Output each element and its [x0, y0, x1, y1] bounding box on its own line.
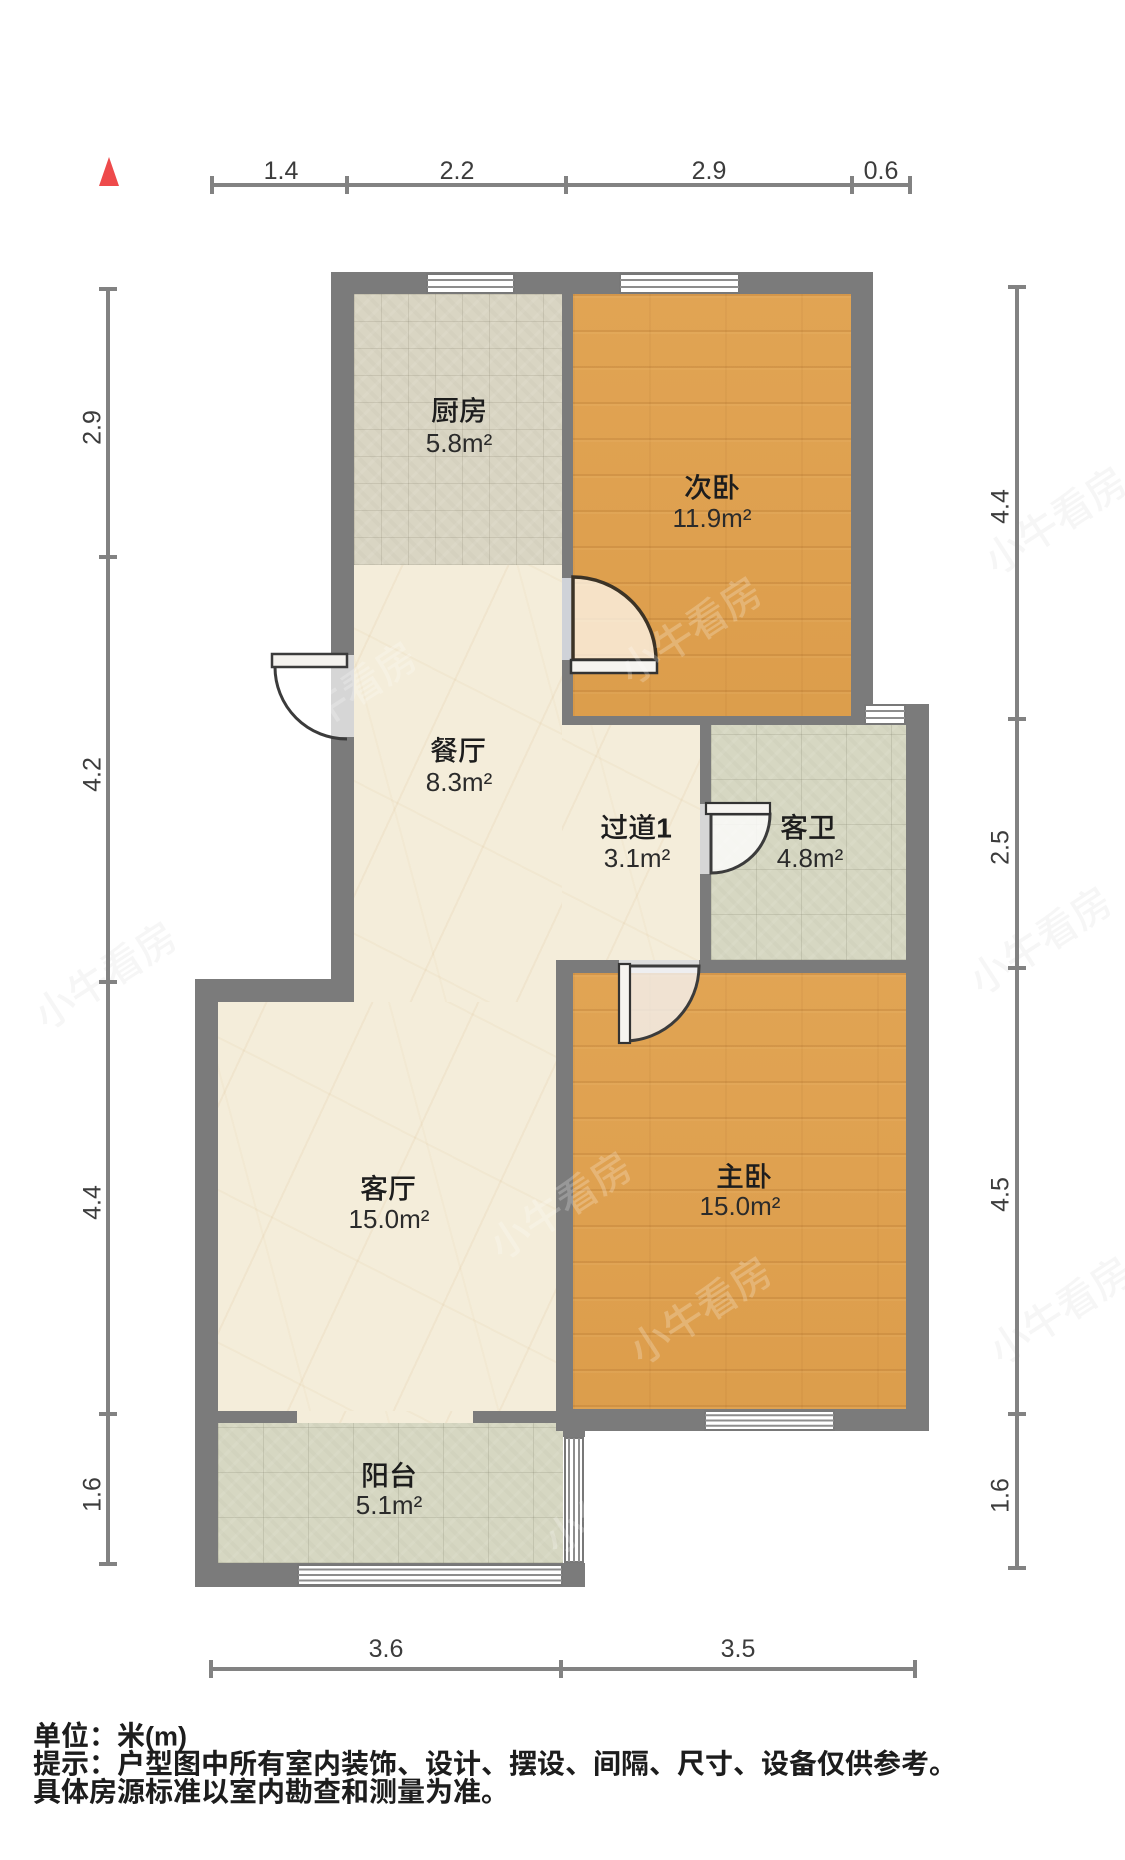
svg-text:(m): (m): [145, 1722, 187, 1752]
svg-text:1: 1: [656, 813, 672, 844]
